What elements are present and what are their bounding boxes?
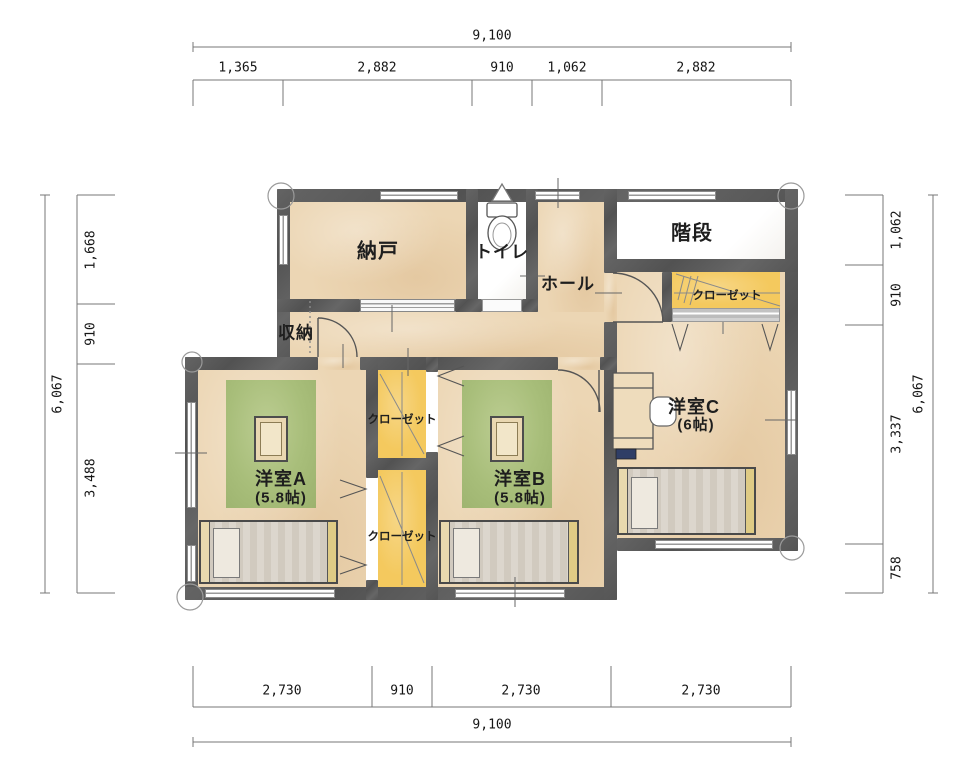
table-room-a [254, 416, 288, 462]
wall-segment [604, 259, 798, 272]
dim-top-seg-3: 910 [490, 61, 513, 76]
wall-segment [522, 299, 538, 312]
window [279, 215, 288, 265]
room-size-room-c: (6帖) [677, 414, 714, 435]
dim-right-seg-1: 1,062 [890, 210, 905, 249]
dim-bottom-seg-3: 2,730 [501, 684, 540, 699]
bed-footboard [568, 522, 577, 582]
dim-top-seg-2: 2,882 [357, 61, 396, 76]
dim-bottom-seg-4: 2,730 [681, 684, 720, 699]
wall-segment [360, 357, 558, 370]
room-label-nando: 納戸 [357, 235, 399, 264]
room-label-stairs: 階段 [671, 217, 713, 246]
bed-pillow [213, 528, 240, 578]
dim-top-seg-4: 1,062 [547, 61, 586, 76]
dim-top-seg-5: 2,882 [676, 61, 715, 76]
wall-segment [366, 580, 378, 600]
bed-pillow [453, 528, 480, 578]
dim-right-seg-2: 910 [890, 283, 905, 306]
window [205, 589, 335, 598]
bed-footboard [327, 522, 336, 582]
bed-headboard [201, 522, 210, 582]
bed-room-a [199, 520, 338, 584]
dim-right-seg-4: 758 [890, 556, 905, 579]
window [455, 589, 565, 598]
floor-doorway-room-a [318, 357, 360, 370]
room-label-closet-mid-bottom: クローゼット [368, 528, 437, 544]
dim-right-total: 6,067 [912, 374, 927, 413]
bed-headboard [619, 469, 628, 533]
dim-top-total: 9,100 [472, 29, 511, 44]
floor-hall-vertical [538, 202, 604, 312]
bed-pillow [631, 477, 658, 529]
wall-segment [426, 357, 438, 372]
dim-top-seg-1: 1,365 [218, 61, 257, 76]
wall-segment [366, 458, 438, 470]
floor-doorway-room-b [558, 357, 600, 370]
room-label-closet-mid-top: クローゼット [368, 411, 437, 427]
sliding-door-nando [360, 299, 455, 312]
dim-left-total: 6,067 [51, 374, 66, 413]
window [187, 402, 196, 508]
door-toilet [482, 299, 522, 312]
window [655, 540, 773, 549]
room-size-room-a: (5.8帖) [255, 487, 307, 508]
window [535, 191, 580, 200]
bed-headboard [441, 522, 450, 582]
wall-segment [785, 189, 798, 551]
dim-left-seg-3: 3,488 [84, 458, 99, 497]
wall-segment [455, 299, 482, 312]
dim-right-seg-3: 3,337 [890, 414, 905, 453]
window [787, 390, 796, 455]
room-size-room-b: (5.8帖) [494, 487, 546, 508]
closet-top-right-door-track [672, 308, 780, 322]
table-room-b [490, 416, 524, 462]
window [628, 191, 716, 200]
room-label-storage: 収納 [278, 319, 314, 344]
wall-segment [600, 357, 617, 370]
floorplan-canvas: 納戸 トイレ ホール 階段 収納 クローゼット クローゼット クローゼット 洋室… [0, 0, 960, 764]
dim-left-seg-2: 910 [84, 322, 99, 345]
room-label-closet-top-right: クローゼット [693, 287, 762, 303]
dim-left-seg-1: 1,668 [84, 230, 99, 269]
room-label-toilet: トイレ [475, 238, 529, 263]
bed-room-b [439, 520, 579, 584]
dim-bottom-total: 9,100 [472, 718, 511, 733]
floor-doorway-room-c [604, 273, 617, 322]
table-top [260, 422, 282, 456]
wall-segment [185, 357, 318, 370]
room-label-hall: ホール [541, 270, 595, 295]
bed-room-c [617, 467, 756, 535]
wall-segment [426, 452, 438, 600]
bed-footboard [745, 469, 754, 533]
table-top [496, 422, 518, 456]
window [380, 191, 458, 200]
dim-bottom-seg-1: 2,730 [262, 684, 301, 699]
wall-segment [662, 272, 672, 322]
window [187, 545, 196, 582]
wall-segment [277, 299, 360, 312]
dim-bottom-seg-2: 910 [390, 684, 413, 699]
